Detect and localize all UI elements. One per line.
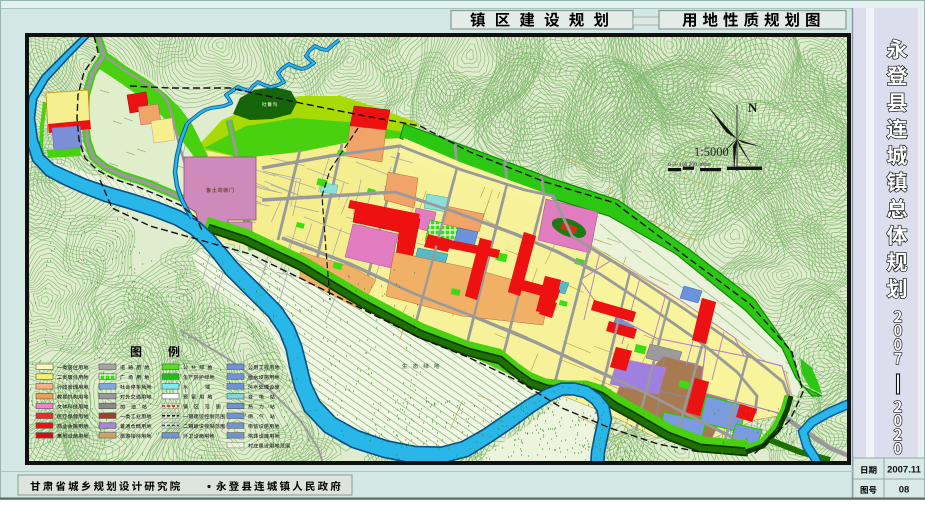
- svg-text:1:5000: 1:5000: [694, 145, 729, 159]
- svg-text:2007.11: 2007.11: [887, 465, 922, 476]
- svg-text:N: N: [748, 100, 758, 115]
- svg-text:08: 08: [899, 485, 910, 496]
